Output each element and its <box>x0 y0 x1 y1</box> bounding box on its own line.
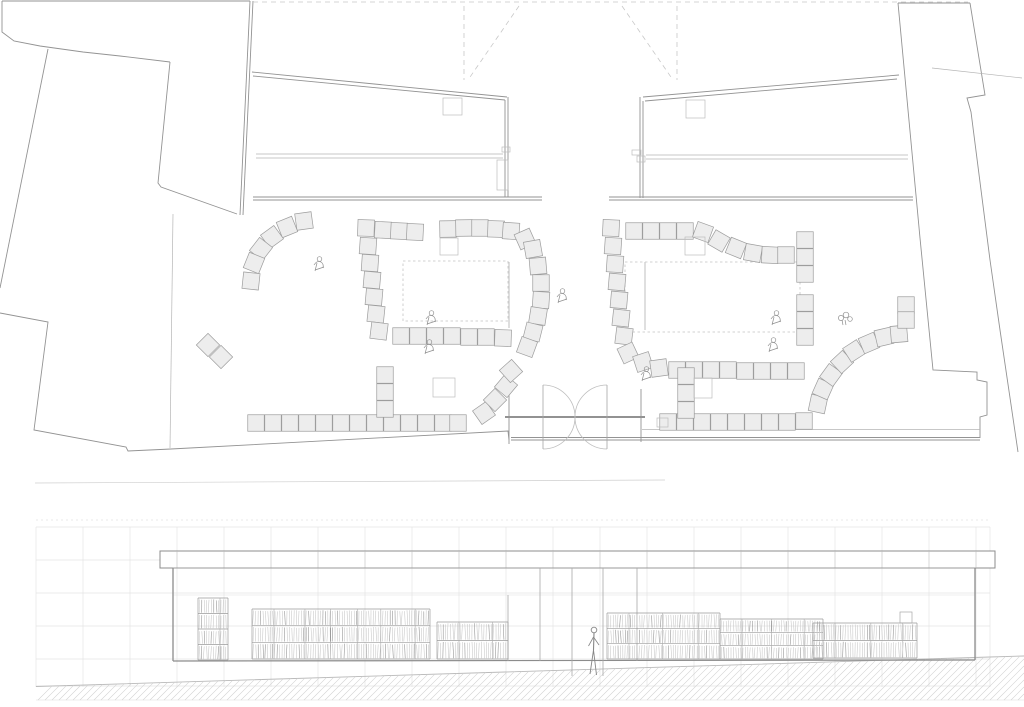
hatch-stroke <box>696 665 731 700</box>
shelf-unit-box <box>612 309 630 327</box>
book-stroke <box>622 614 623 627</box>
book-stroke <box>327 627 328 642</box>
hatch-stroke <box>346 676 370 700</box>
hatch-stroke <box>290 678 312 700</box>
person-head <box>591 627 597 633</box>
book-stroke <box>798 621 799 631</box>
book-stroke <box>810 647 811 658</box>
wall-line <box>932 68 1022 78</box>
hatch-stroke <box>150 682 168 700</box>
hatch-stroke <box>745 663 782 700</box>
shelf-unit-box <box>754 363 771 380</box>
shelf-unit <box>478 329 495 346</box>
book-stroke <box>831 642 832 657</box>
book-stroke <box>656 630 657 643</box>
book-stroke <box>879 643 880 658</box>
book-stroke <box>462 624 463 640</box>
shelf-unit <box>737 363 754 380</box>
shelf-unit <box>604 237 622 255</box>
shelf-unit-box <box>761 246 778 263</box>
hatch-stroke <box>647 667 680 700</box>
shelf-unit <box>797 329 814 346</box>
hatch-stroke <box>619 667 652 700</box>
book-stroke <box>616 630 617 643</box>
hatch-stroke <box>276 678 298 700</box>
hatch-stroke <box>381 675 406 700</box>
shelf-unit-box <box>456 220 473 237</box>
hatch-stroke <box>136 683 153 700</box>
book-stroke <box>382 611 383 625</box>
book-stroke <box>498 642 499 658</box>
book-stroke <box>417 628 418 642</box>
book-stroke <box>836 643 837 658</box>
shelf-unit <box>779 414 796 431</box>
hatch-stroke <box>752 663 789 700</box>
shelf-unit <box>529 307 548 326</box>
shelf-unit-box <box>602 219 619 236</box>
canopy-fascia <box>160 551 995 568</box>
person-figure <box>314 257 324 271</box>
book-stroke <box>688 630 689 643</box>
shelf-unit <box>299 415 316 432</box>
book-stroke <box>850 625 851 640</box>
hatch-stroke <box>773 663 810 700</box>
book-stroke <box>659 631 660 643</box>
book-stroke <box>201 646 202 659</box>
bookshelf <box>720 619 823 659</box>
hatch-stroke <box>731 664 767 700</box>
book-stroke <box>268 611 269 625</box>
book-stroke <box>208 646 209 659</box>
shelf-unit <box>242 272 260 290</box>
book-stroke <box>857 642 858 657</box>
wall-line <box>240 1 250 215</box>
book-stroke <box>692 614 693 627</box>
person-body-scribble <box>424 344 433 351</box>
shelf-top-box <box>900 612 912 623</box>
hatch-stroke <box>437 673 464 700</box>
book-stroke <box>306 644 307 658</box>
boundary-dashed-line <box>622 6 673 80</box>
book-stroke <box>711 614 712 627</box>
book-stroke <box>790 648 791 658</box>
book-stroke <box>826 642 827 657</box>
shelf-unit <box>461 329 478 346</box>
book-stroke <box>273 611 274 625</box>
hatch-stroke <box>955 657 998 700</box>
book-stroke <box>682 630 683 643</box>
shelf-unit <box>406 223 423 240</box>
shelf-unit-box <box>797 249 814 266</box>
person-body-scribble <box>314 261 323 268</box>
book-stroke <box>287 627 288 641</box>
hatch-stroke <box>675 666 709 700</box>
person-body-scribble <box>771 315 780 322</box>
hatch-stroke <box>423 674 449 700</box>
book-stroke <box>277 627 278 641</box>
hatch-stroke <box>171 682 189 700</box>
display-table <box>497 160 508 190</box>
wall-line <box>2 1 170 62</box>
book-stroke <box>812 648 813 659</box>
hatch-stroke <box>997 673 1024 700</box>
book-stroke <box>199 646 200 659</box>
book-stroke <box>726 635 727 645</box>
wall-line <box>0 313 171 451</box>
shelf-unit <box>374 221 391 238</box>
bookshelves <box>198 598 917 660</box>
shelf-unit-box <box>788 363 805 380</box>
book-stroke <box>417 645 418 659</box>
book-stroke <box>220 631 221 644</box>
book-stroke <box>706 645 707 658</box>
person-figure <box>557 289 567 303</box>
book-stroke <box>311 628 312 642</box>
shelf-unit-box <box>377 384 394 401</box>
shelf-unit-box <box>779 414 796 431</box>
book-stroke <box>814 647 815 658</box>
book-stroke <box>351 644 352 658</box>
book-stroke <box>265 644 266 658</box>
display-table <box>502 147 510 152</box>
person-figure <box>426 311 436 325</box>
book-stroke <box>378 644 379 658</box>
shelf-unit <box>610 291 628 309</box>
hatch-stroke <box>269 679 290 700</box>
book-stroke <box>656 646 657 659</box>
book-stroke <box>207 646 208 659</box>
book-stroke <box>414 628 415 642</box>
book-stroke <box>795 648 796 658</box>
plant-leaf <box>848 317 853 322</box>
book-stroke <box>394 628 395 642</box>
shelf-unit-box <box>797 266 814 283</box>
display-table <box>443 98 462 115</box>
book-stroke <box>438 624 439 639</box>
shelf-unit <box>295 212 314 231</box>
book-stroke <box>216 646 217 659</box>
book-stroke <box>783 634 784 645</box>
book-stroke <box>310 611 311 625</box>
person-torso <box>594 633 595 650</box>
book-stroke <box>778 634 779 645</box>
book-stroke <box>808 621 809 631</box>
shelf-unit-box <box>444 328 461 345</box>
shelf-unit <box>435 415 452 432</box>
book-stroke <box>687 645 688 658</box>
person-body-scribble <box>769 348 778 351</box>
bookshelf <box>198 598 228 660</box>
shelf-unit <box>377 384 394 401</box>
shelf-unit <box>694 414 711 431</box>
shelf-unit <box>643 223 660 240</box>
shelf-unit <box>523 239 542 258</box>
book-stroke <box>613 646 614 658</box>
book-stroke <box>309 611 310 625</box>
book-stroke <box>879 625 880 639</box>
hatch-stroke <box>444 673 471 700</box>
book-stroke <box>685 645 686 658</box>
display-table <box>694 378 712 398</box>
shelf-unit <box>771 363 788 380</box>
person-arm <box>594 637 600 645</box>
hatch-stroke <box>682 665 717 700</box>
person-head <box>560 289 565 294</box>
book-stroke <box>773 648 774 659</box>
hatch-stroke <box>766 663 803 700</box>
shelf-unit-box <box>678 368 695 385</box>
shelf-unit-box <box>357 219 374 236</box>
book-stroke <box>898 642 899 657</box>
book-stroke <box>718 614 719 627</box>
book-stroke <box>441 624 442 640</box>
book-stroke <box>749 647 750 658</box>
book-stroke <box>393 645 394 659</box>
book-stroke <box>755 634 756 645</box>
book-stroke <box>387 628 388 642</box>
book-stroke <box>285 611 286 625</box>
book-stroke <box>358 627 359 641</box>
shelf-unit-box <box>771 363 788 380</box>
book-stroke <box>712 630 713 643</box>
book-stroke <box>479 643 480 658</box>
shelf-unit-box <box>377 367 394 384</box>
shelf-unit <box>608 273 626 291</box>
book-stroke <box>757 634 758 645</box>
shelf-unit-box <box>361 254 379 272</box>
book-stroke <box>389 627 390 641</box>
shelf-unit-box <box>440 221 457 238</box>
shelf-unit-box <box>295 212 314 231</box>
hatch-stroke <box>815 661 854 700</box>
book-stroke <box>208 600 209 613</box>
hatch-stroke <box>395 675 420 700</box>
shelf-unit <box>427 328 444 345</box>
book-stroke <box>301 628 302 642</box>
hatch-stroke <box>661 666 695 700</box>
shelf-unit <box>650 359 669 378</box>
book-stroke <box>812 621 813 632</box>
shelf-unit <box>626 223 643 240</box>
shelf-unit <box>316 415 333 432</box>
hatch-stroke <box>101 684 117 700</box>
hatch-stroke <box>906 658 948 700</box>
plant-figure <box>838 312 852 325</box>
hatch-stroke <box>801 662 839 700</box>
shelf-unit <box>711 414 728 431</box>
book-stroke <box>203 646 204 659</box>
book-stroke <box>268 627 269 642</box>
book-stroke <box>255 611 256 625</box>
book-stroke <box>752 634 753 645</box>
book-stroke <box>424 644 425 658</box>
book-stroke <box>390 644 391 658</box>
book-stroke <box>274 644 275 658</box>
book-stroke <box>294 644 295 658</box>
hatch-stroke <box>612 668 644 700</box>
shelf-unit-box <box>694 414 711 431</box>
shelf-unit-box <box>778 247 795 264</box>
book-stroke <box>457 642 458 658</box>
shelf-unit <box>494 329 511 346</box>
book-stroke <box>472 642 473 658</box>
shelf-unit <box>660 223 677 240</box>
book-stroke <box>664 630 665 643</box>
book-stroke <box>781 634 782 645</box>
book-stroke <box>265 611 266 625</box>
shelf-unit <box>363 271 381 289</box>
shelf-unit-box <box>533 275 550 292</box>
wall-line <box>645 79 897 101</box>
hatch-stroke <box>948 657 991 700</box>
hatch-stroke <box>969 656 1013 700</box>
shelf-unit <box>743 243 762 262</box>
book-stroke <box>503 624 504 640</box>
shelf-unit-box <box>650 359 669 378</box>
book-stroke <box>639 646 640 659</box>
book-stroke <box>641 645 642 658</box>
book-stroke <box>750 621 751 632</box>
shelf-unit <box>487 220 504 237</box>
book-stroke <box>620 631 621 643</box>
book-stroke <box>376 627 377 642</box>
hatch-stroke <box>591 668 623 700</box>
plant-leaf <box>843 312 849 318</box>
shelf-unit <box>265 415 282 432</box>
book-stroke <box>736 647 737 658</box>
book-stroke <box>333 644 334 658</box>
hatch-stroke <box>80 685 95 700</box>
hatch-stroke <box>164 682 182 700</box>
shelf-unit <box>367 305 385 323</box>
plant-stem <box>842 320 846 325</box>
book-stroke <box>308 644 309 658</box>
hatch-stroke <box>402 674 428 700</box>
book-stroke <box>748 634 749 645</box>
shelf-unit <box>444 328 461 345</box>
shelf-unit <box>778 247 795 264</box>
hatch-stroke <box>451 673 478 700</box>
book-stroke <box>822 643 823 657</box>
hatch-stroke <box>934 657 977 700</box>
hatch-stroke <box>318 677 341 700</box>
door-swing-arc <box>575 385 607 417</box>
shelf-unit <box>390 222 407 239</box>
shelf-unit <box>365 288 383 306</box>
plant-leaf <box>838 315 843 320</box>
hatch-stroke <box>416 674 442 700</box>
architectural-drawing-sheet <box>0 0 1024 707</box>
book-stroke <box>713 646 714 658</box>
shelf-unit-box <box>333 415 350 432</box>
shelf-units <box>196 212 914 432</box>
book-stroke <box>489 624 490 639</box>
shelf-unit <box>788 363 805 380</box>
book-stroke <box>903 624 904 639</box>
book-stroke <box>864 642 865 657</box>
book-stroke <box>843 625 844 640</box>
shelf-unit <box>456 220 473 237</box>
hatch-stroke <box>283 678 305 700</box>
hatch-stroke <box>1011 687 1024 700</box>
shelf-unit-box <box>472 220 489 237</box>
hatch-stroke <box>157 682 175 700</box>
wall-line <box>967 3 1018 452</box>
shelf-unit-box <box>703 362 720 379</box>
book-stroke <box>274 627 275 641</box>
person-head <box>429 311 434 316</box>
book-stroke <box>786 647 787 658</box>
book-stroke <box>760 621 761 632</box>
shelf-unit-box <box>299 415 316 432</box>
book-stroke <box>891 625 892 640</box>
book-stroke <box>665 630 666 643</box>
hatch-stroke <box>332 677 355 700</box>
book-stroke <box>378 611 379 625</box>
shelf-unit-box <box>529 307 548 326</box>
book-stroke <box>407 610 408 625</box>
book-stroke <box>716 646 717 659</box>
book-stroke <box>915 642 916 657</box>
book-stroke <box>428 627 429 641</box>
hatch-stroke <box>304 678 326 700</box>
person-body-scribble <box>557 293 566 300</box>
shelf-unit <box>361 254 379 272</box>
hatch-stroke <box>500 671 529 700</box>
shelf-unit <box>350 415 367 432</box>
wall-line <box>252 72 507 97</box>
shelf-unit <box>797 312 814 329</box>
book-stroke <box>488 643 489 658</box>
person-body-scribble <box>427 321 436 324</box>
book-stroke <box>723 621 724 631</box>
book-stroke <box>611 630 612 642</box>
book-stroke <box>387 611 388 625</box>
book-stroke <box>701 630 702 643</box>
shelf-unit-box <box>898 312 915 329</box>
book-stroke <box>204 600 205 613</box>
hatch-stroke <box>913 658 955 700</box>
book-stroke <box>363 627 364 641</box>
person-body-scribble <box>558 299 567 302</box>
book-stroke <box>380 645 381 659</box>
shelf-unit-box <box>678 402 695 419</box>
shelf-unit-box <box>418 415 435 432</box>
book-stroke <box>814 643 815 658</box>
hatch-stroke <box>52 686 66 700</box>
book-stroke <box>282 611 283 625</box>
book-stroke <box>490 642 491 658</box>
book-stroke <box>754 647 755 658</box>
boundary-dashed-line <box>468 6 519 80</box>
hatch-stroke <box>374 675 399 700</box>
book-stroke <box>405 644 406 658</box>
book-stroke <box>320 645 321 659</box>
book-stroke <box>660 615 661 628</box>
wall-line <box>158 62 237 214</box>
book-stroke <box>388 644 389 658</box>
shelf-unit-box <box>401 415 418 432</box>
display-table <box>686 100 705 118</box>
door-swing-arc <box>543 385 575 417</box>
book-stroke <box>263 611 264 625</box>
shelf-unit <box>370 322 388 340</box>
book-stroke <box>692 631 693 643</box>
book-stroke <box>760 634 761 645</box>
shelf-unit-box <box>604 237 622 255</box>
hatch-stroke <box>780 662 818 700</box>
book-stroke <box>709 615 710 628</box>
